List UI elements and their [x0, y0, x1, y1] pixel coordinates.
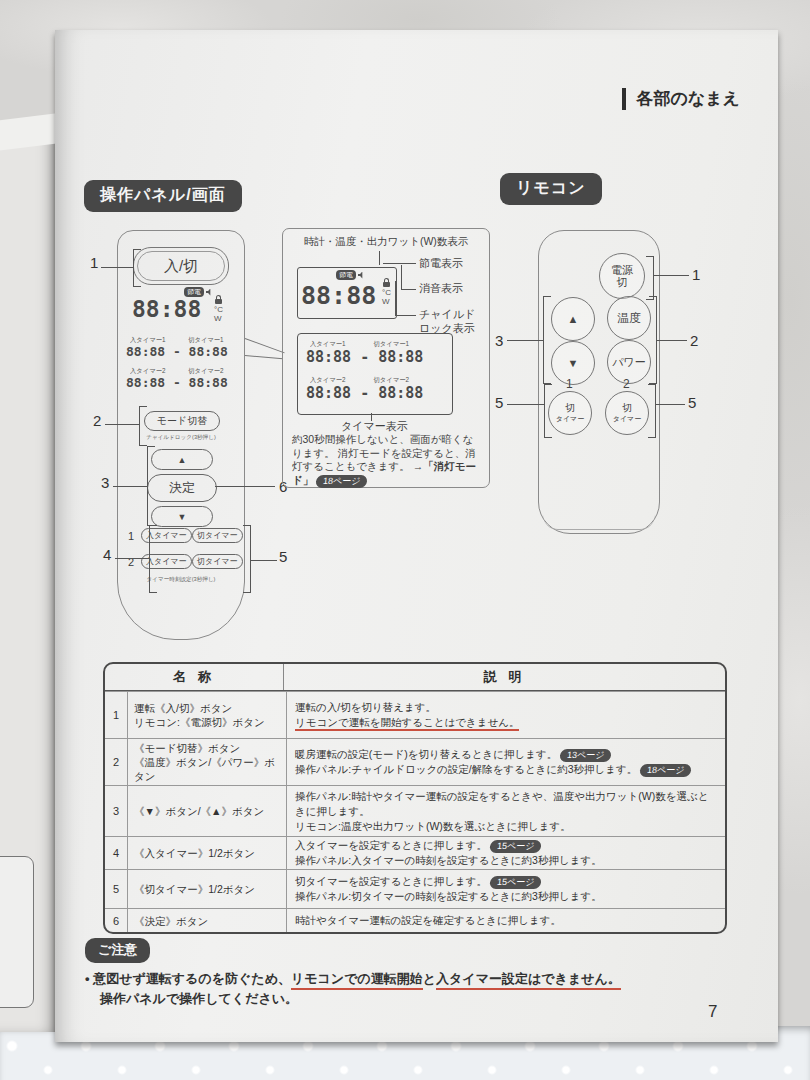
remote-off-timer1-button: 切 タイマー: [548, 391, 592, 435]
callout-5-panel: 5: [279, 548, 287, 565]
mute-indicator-label: 消音表示: [419, 282, 463, 295]
remote-callout-1: 1: [692, 266, 700, 283]
remote-up-button: ▲: [551, 297, 595, 341]
timer-display-graphic: 入タイマー1 切タイマー1 88:88 - 88:88 入タイマー2 切タイマー…: [297, 333, 453, 415]
page-title: 各部のなまえ: [622, 88, 740, 110]
display-top-label: 時計・温度・出力ワット(W)数表示: [283, 235, 489, 249]
remote-control-diagram: 電源 切 ▲ 温度 ▼ パワー 1 2 切 タイマー 切 タイマ: [538, 230, 660, 534]
mute-icon: [206, 289, 213, 296]
remote-down-button: ▼: [551, 341, 595, 385]
clock-display-graphic: 節電 88:88 °C W: [297, 267, 397, 319]
remote-callout-5-right: 5: [688, 394, 696, 411]
control-panel-diagram: 入/切 節電 88:88 °C W 入タイマー1 切タイマー1 88:88 - …: [117, 230, 245, 640]
remote-inner-outline: [543, 515, 655, 530]
timer1-digits: 88:88 - 88:88: [126, 344, 228, 359]
page-ref-badge-18: 18ページ: [315, 475, 368, 488]
mute-icon: [358, 272, 365, 279]
unit-watt: W: [214, 314, 223, 323]
table-row: 2 《モード切替》ボタン 《温度》ボタン/《パワー》ボタン 暖房運転の設定(モー…: [105, 738, 725, 785]
mode-switch-button: モード切替: [144, 411, 220, 431]
timer2-digits: 88:88 - 88:88: [126, 375, 228, 390]
underlying-page-edge: [0, 120, 62, 1032]
timer-rows-caption: タイマー時刻設定(3秒押し): [131, 575, 232, 583]
callout-3: 3: [101, 474, 109, 491]
table-row: 1 運転《入/切》ボタン リモコン:《電源切》ボタン 運転の入/切を切り替えます…: [105, 691, 725, 738]
enter-button: 決定: [147, 474, 217, 502]
timer-row1-num: 1: [128, 530, 134, 542]
clock-digits: 88:88: [301, 281, 376, 310]
remote-callout-2: 2: [690, 332, 698, 349]
off-timer1-button: 切タイマー: [192, 528, 243, 543]
display-notes: 約30秒間操作しないと、画面が暗くなります。 消灯モードを設定すると、消灯するこ…: [292, 433, 482, 488]
down-button: ▼: [151, 506, 213, 527]
eco-badge: 節電: [336, 270, 356, 280]
remote-power-off-button: 電源 切: [599, 253, 645, 299]
remote-callout-5-left: 5: [495, 394, 503, 411]
clock-digits: 88:88: [132, 296, 201, 322]
remote-num1: 1: [566, 377, 573, 391]
table-row: 4 《入タイマー》1/2ボタン 入タイマーを設定するときに押します。 15ページ…: [105, 836, 725, 869]
childlock-indicator-label-1: チャイルド: [419, 308, 475, 321]
red-underline-1: リモコンでの運転開始: [291, 971, 423, 990]
timer-display-caption: タイマー表示: [341, 419, 408, 434]
remote-callout-3: 3: [495, 332, 503, 349]
notice-line1: • 意図せず運転するのを防ぐため、リモコンでの運転開始と入タイマー設定はできませ…: [85, 968, 750, 989]
page-ref-badge-13: 13ページ: [559, 749, 612, 762]
callout-4: 4: [103, 546, 111, 563]
callout-2: 2: [93, 412, 101, 429]
timer1-digits: 88:88 - 88:88: [306, 348, 423, 366]
red-underline-2: 入タイマー設定はできません。: [436, 971, 621, 990]
page-ref-badge-18: 18ページ: [640, 764, 693, 777]
photo-of-manual-page: 各部のなまえ 操作パネル/画面 リモコン 入/切 節電 88:88 °C W: [0, 0, 810, 1080]
table-row: 5 《切タイマー》1/2ボタン 切タイマーを設定するときに押します。 15ページ…: [105, 869, 725, 908]
lock-icon: [383, 282, 390, 287]
callout-1: 1: [90, 254, 98, 271]
up-button: ▲: [151, 449, 213, 470]
section-badge-panel: 操作パネル/画面: [84, 180, 242, 212]
display-explanation-box: 時計・温度・出力ワット(W)数表示 節電 88:88 °C W 節電表示: [282, 228, 490, 488]
table-row: 3 《▼》ボタン/《▲》ボタン 操作パネル:時計やタイマー運転の設定をするときや…: [105, 785, 725, 836]
remote-temp-button: 温度: [607, 296, 651, 340]
remote-off-timer2-button: 切 タイマー: [605, 391, 649, 435]
parts-description-table: 名 称 説 明 1 運転《入/切》ボタン リモコン:《電源切》ボタン 運転の入/…: [103, 662, 727, 934]
timer2-digits: 88:88 - 88:88: [306, 384, 423, 402]
page-ref-badge-15: 15ページ: [489, 876, 542, 889]
unit-celsius: °C: [214, 305, 223, 314]
column-header-name: 名 称: [105, 664, 284, 690]
notice-badge: ご注意: [85, 938, 150, 963]
table-header-row: 名 称 説 明: [105, 664, 725, 691]
section-badge-remote: リモコン: [500, 173, 602, 205]
power-onoff-button: 入/切: [133, 247, 229, 285]
red-underlined-warning: リモコンで運転を開始することはできません。: [295, 716, 519, 731]
column-header-desc: 説 明: [284, 664, 725, 690]
off-timer2-button: 切タイマー: [192, 554, 243, 569]
page-number: 7: [708, 1002, 717, 1022]
eco-indicator-label: 節電表示: [419, 257, 463, 270]
manual-page: 各部のなまえ 操作パネル/画面 リモコン 入/切 節電 88:88 °C W: [55, 30, 778, 1042]
remote-num2: 2: [623, 377, 630, 391]
notice-line2: 操作パネルで操作してください。: [100, 990, 298, 1008]
table-row: 6 《決定》ボタン 時計やタイマー運転の設定を確定するときに押します。: [105, 908, 725, 932]
underlying-page-box-outline: [0, 856, 34, 1008]
lock-icon: [215, 299, 222, 304]
page-ref-badge-15: 15ページ: [489, 840, 542, 853]
